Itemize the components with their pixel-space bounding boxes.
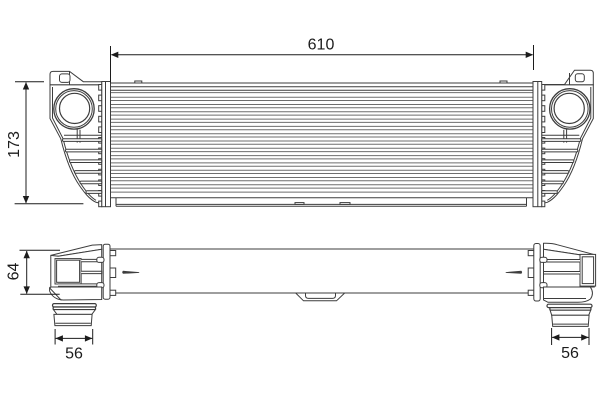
svg-text:64: 64	[6, 263, 23, 281]
svg-text:610: 610	[308, 37, 335, 54]
svg-text:56: 56	[65, 345, 83, 362]
svg-text:173: 173	[6, 131, 23, 158]
svg-text:56: 56	[561, 345, 579, 362]
